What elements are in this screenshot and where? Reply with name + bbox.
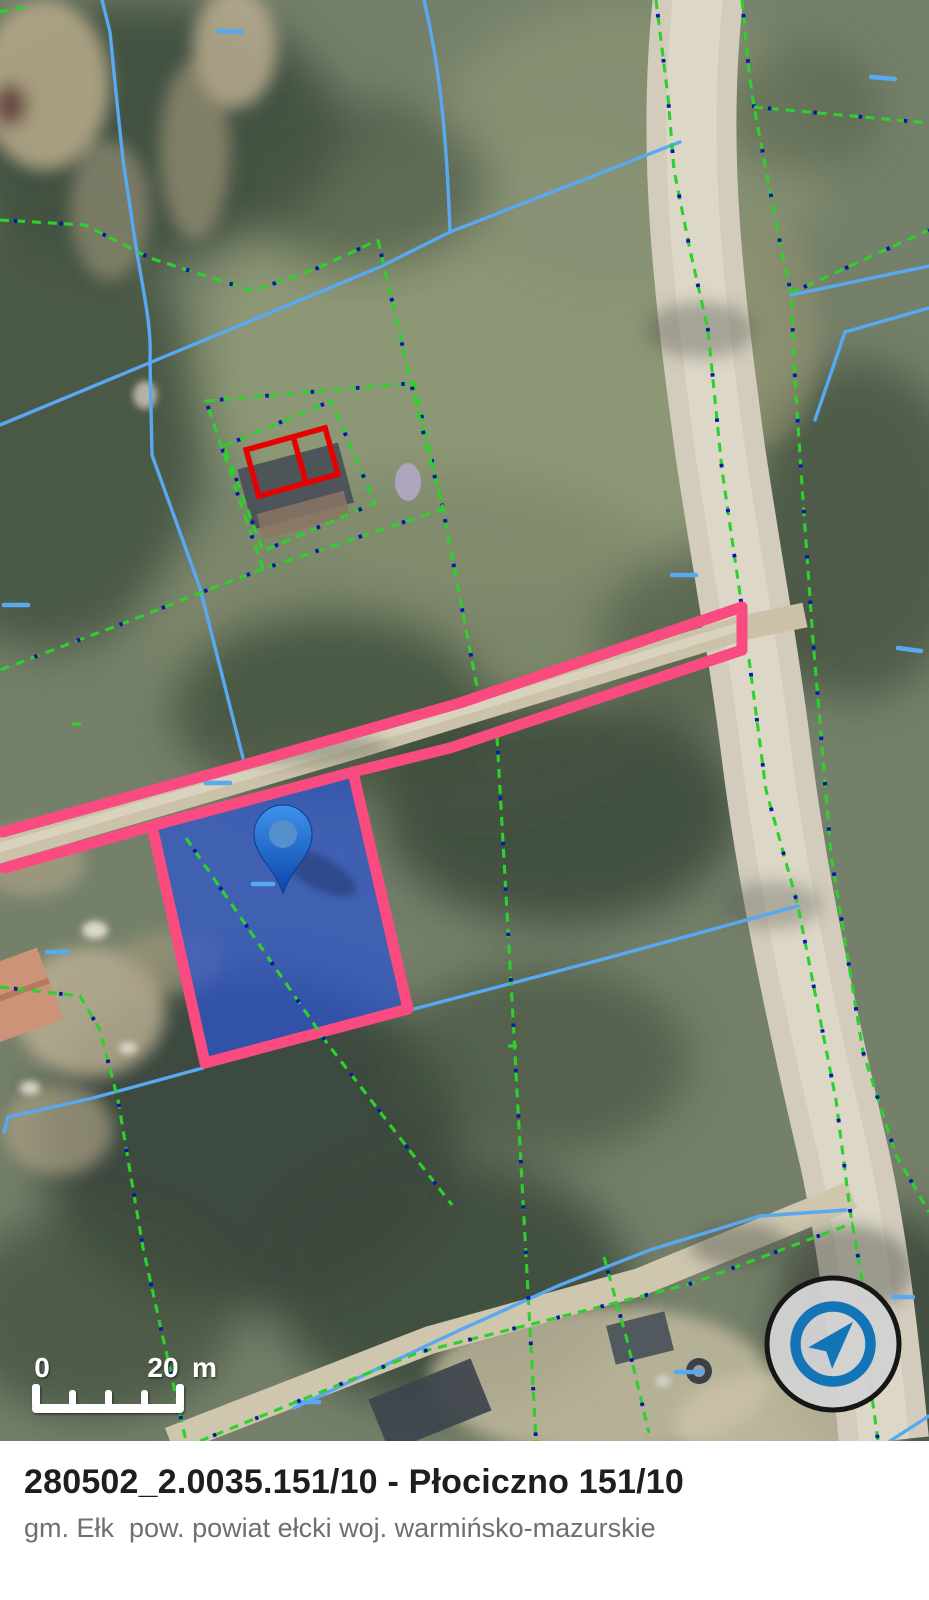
aerial-basemap xyxy=(0,0,929,1441)
app-screen: 0 20 m 280502_2.0035.151/10 - Płociczno … xyxy=(0,0,929,1600)
scale-distance-label: 20 xyxy=(147,1352,178,1383)
compass-button[interactable] xyxy=(767,1278,899,1410)
parcel-id-title: 280502_2.0035.151/10 - Płociczno 151/10 xyxy=(24,1461,905,1504)
scale-zero-label: 0 xyxy=(34,1352,50,1383)
scale-unit-label: m xyxy=(192,1352,217,1383)
parcel-location-subtitle: gm. Ełk pow. powiat ełcki woj. warmińsko… xyxy=(24,1513,905,1544)
parcel-info-bar: 280502_2.0035.151/10 - Płociczno 151/10 … xyxy=(0,1441,929,1600)
car-blob xyxy=(395,463,421,501)
map-viewport[interactable]: 0 20 m xyxy=(0,0,929,1441)
